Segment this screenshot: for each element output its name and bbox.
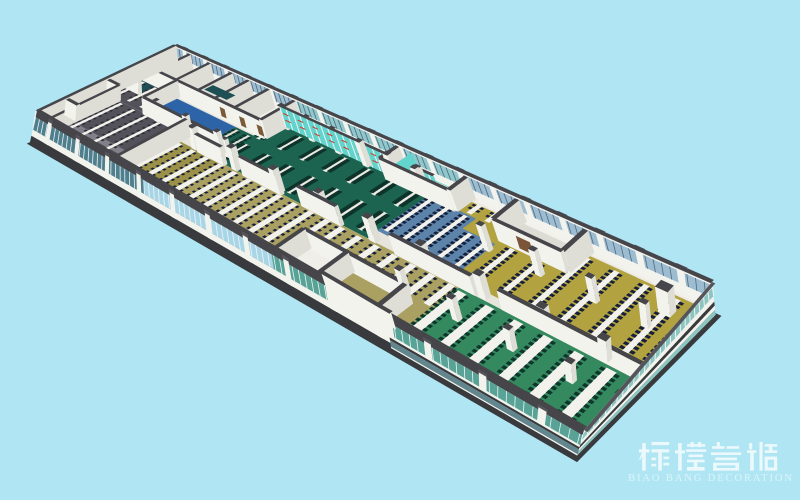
svg-text:BIAO BANG DECORATION: BIAO BANG DECORATION [628, 473, 794, 484]
